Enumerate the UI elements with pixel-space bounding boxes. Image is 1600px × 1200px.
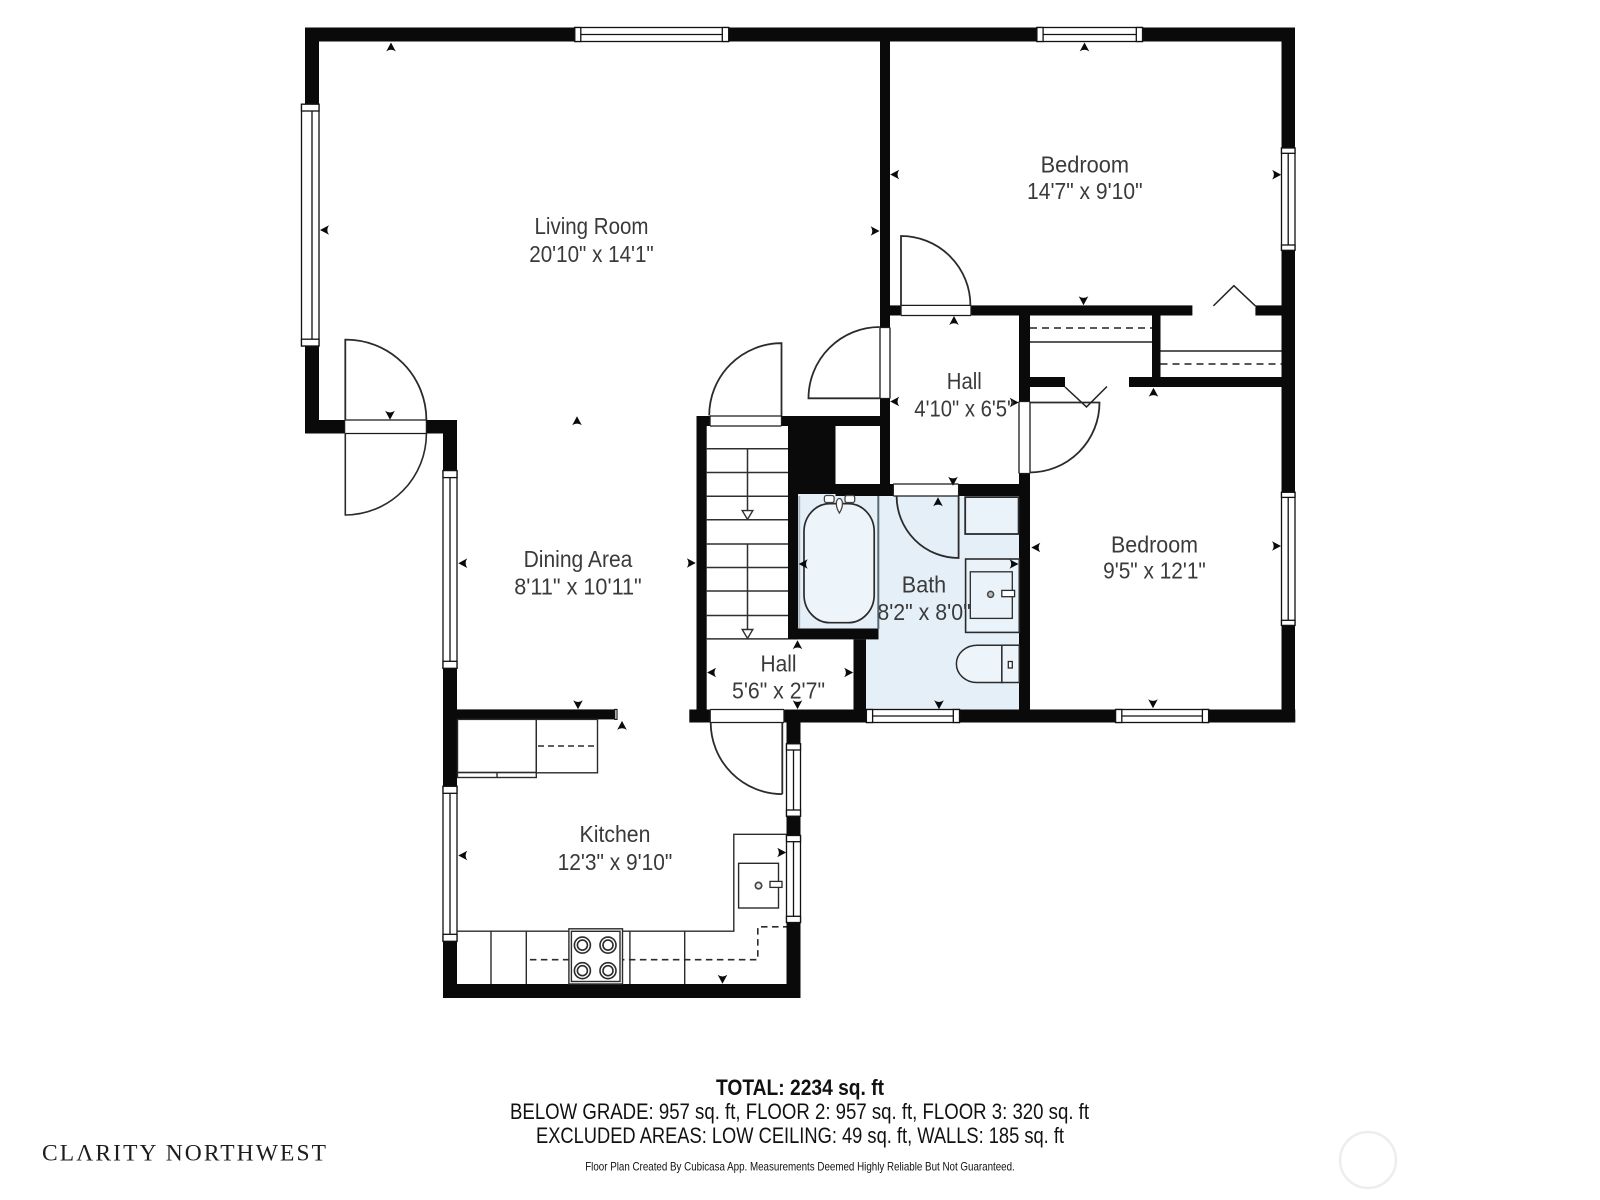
svg-text:Bedroom: Bedroom <box>1111 532 1198 558</box>
svg-text:20'10" x 14'1": 20'10" x 14'1" <box>529 241 654 267</box>
svg-text:4'10" x 6'5": 4'10" x 6'5" <box>914 396 1014 422</box>
svg-text:Bath: Bath <box>902 572 946 598</box>
svg-text:14'7" x 9'10": 14'7" x 9'10" <box>1027 178 1143 204</box>
svg-text:8'2" x 8'0": 8'2" x 8'0" <box>877 599 970 625</box>
svg-text:Living Room: Living Room <box>535 213 649 239</box>
svg-text:BELOW GRADE: 957 sq. ft, FLOOR: BELOW GRADE: 957 sq. ft, FLOOR 2: 957 sq… <box>510 1099 1090 1124</box>
svg-text:12'3" x 9'10": 12'3" x 9'10" <box>558 849 673 875</box>
svg-text:Kitchen: Kitchen <box>580 821 651 847</box>
svg-text:Dining Area: Dining Area <box>524 546 633 572</box>
svg-text:9'5" x 12'1": 9'5" x 12'1" <box>1103 558 1206 584</box>
svg-text:Bedroom: Bedroom <box>1041 152 1129 178</box>
svg-text:EXCLUDED AREAS: LOW CEILING: 4: EXCLUDED AREAS: LOW CEILING: 49 sq. ft, … <box>536 1123 1065 1148</box>
svg-text:Floor Plan Created By Cubicasa: Floor Plan Created By Cubicasa App. Meas… <box>585 1159 1015 1173</box>
svg-text:5'6" x 2'7": 5'6" x 2'7" <box>732 678 825 704</box>
svg-text:Hall: Hall <box>947 368 982 394</box>
svg-text:8'11" x 10'11": 8'11" x 10'11" <box>514 574 642 600</box>
svg-text:CLΛRITY NORTHWEST: CLΛRITY NORTHWEST <box>42 1141 330 1167</box>
svg-text:Hall: Hall <box>761 651 797 677</box>
svg-text:TOTAL: 2234 sq. ft: TOTAL: 2234 sq. ft <box>716 1075 884 1100</box>
